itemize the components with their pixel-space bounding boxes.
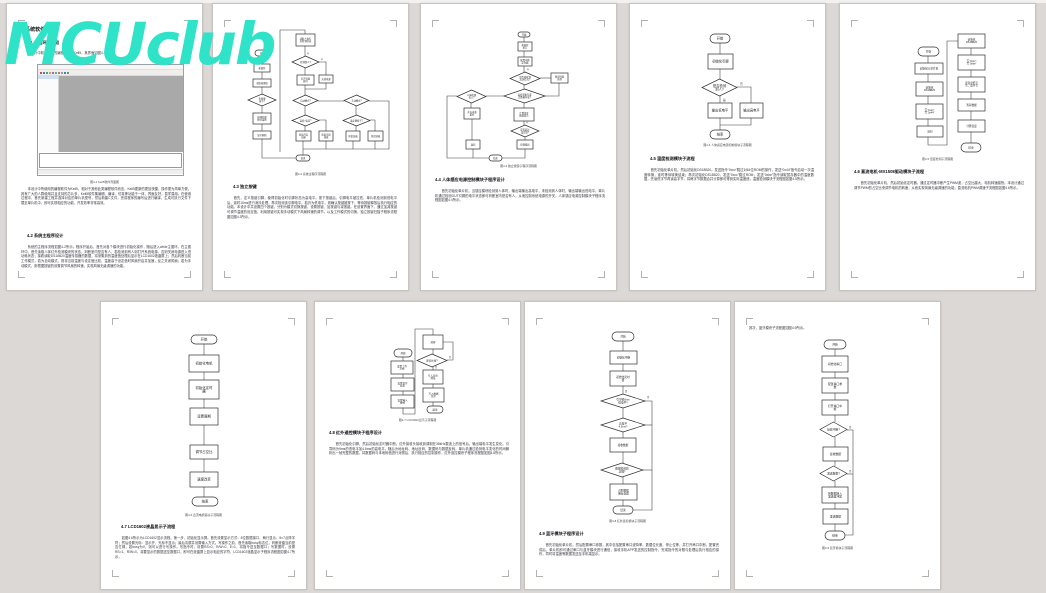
svg-text:是: 是 <box>625 389 628 393</box>
flowchart-bluetooth: 开始初始化串口配置串口参数打开串口中断接收中断?接收数据发送数据?将数据转入发送… <box>735 302 942 544</box>
document-page-4[interactable]: 开始初始化引脚是否检测到人?输出低电平输出高电平结束是否 图4-4 人体感应电源… <box>629 3 826 291</box>
document-page-1[interactable]: 4 系统软件设计 4.1 编程环境介绍 本设计中软件系统的编程环境为Keil5，… <box>6 3 203 291</box>
svg-text:速度改变: 速度改变 <box>197 477 211 482</box>
svg-text:结束: 结束 <box>968 145 974 149</box>
margin-mark <box>598 271 605 278</box>
body-paragraph: 系统的主程序流程如图4-2所示。程序开始后，首先对各个模块进行初始化操作，随后进… <box>21 245 191 268</box>
svg-text:开始: 开始 <box>717 36 724 41</box>
svg-text:初始化中断: 初始化中断 <box>617 355 631 359</box>
margin-mark <box>712 570 719 577</box>
svg-text:初始化引脚: 初始化引脚 <box>712 59 729 64</box>
margin-mark <box>746 570 753 577</box>
section-heading: 4.6 直流电机-MX1508驱动模块子流程 <box>854 169 924 175</box>
margin-mark <box>502 570 509 577</box>
flowchart-main-program: 开始初始化读取按键值有按键按下?按键处理模式设置显示刷新读取人体红外检测状态检测… <box>213 4 410 174</box>
svg-text:是: 是 <box>449 355 452 359</box>
svg-text:否: 否 <box>849 469 852 473</box>
section-heading: 4.3 独立按键 <box>233 184 257 190</box>
svg-text:否: 否 <box>647 395 650 399</box>
figure-caption: 图4-2 系统主程序流程图 <box>213 172 408 176</box>
figure-caption: 图4-8 红外遥控模块子流程图 <box>525 519 730 523</box>
body-paragraph: 首先初始化引脚，然后初始化定时器中断。红外接收头接收到调制在38kHz载波上的信… <box>329 442 509 456</box>
body-paragraph: 首先初始化单片机，然后初始化DS18B20。发送指令“0xcc”跳过对64位RO… <box>644 168 814 182</box>
svg-text:将数据转入发送缓冲区: 将数据转入发送缓冲区 <box>828 492 842 499</box>
svg-text:开始: 开始 <box>201 337 208 342</box>
ide-status-bar <box>38 169 183 174</box>
section-heading: 4.1 编程环境介绍 <box>27 40 59 46</box>
section-heading: 4.7 LCD1602液晶显示子流程 <box>121 524 175 530</box>
document-page-2[interactable]: 开始初始化读取按键值有按键按下?按键处理模式设置显示刷新读取人体红外检测状态检测… <box>212 3 409 291</box>
body-paragraph: 本设计中软件系统的编程环境为Keil5，其界面如图4.1所示。 <box>21 51 191 56</box>
body-paragraph: 首先初始化单片机，然后初始化定时器。通过定时器中断产生PWM波，占空比越大，电机… <box>854 181 1024 190</box>
figure-caption: 图4-9 蓝牙模块子流程图 <box>735 546 940 550</box>
svg-text:否: 否 <box>849 425 852 429</box>
svg-text:结束: 结束 <box>832 533 838 537</box>
svg-text:接收中断?: 接收中断? <box>827 427 840 431</box>
figure-caption: 图4-3 独立按键子程序流程图 <box>421 164 616 168</box>
ide-editor-area <box>59 76 183 152</box>
svg-text:开始: 开始 <box>832 342 838 346</box>
section-heading: 4.5 温度检测模块子流程 <box>650 156 695 162</box>
margin-mark <box>922 570 929 577</box>
body-paragraph: 首先，定义按键引脚，使得初始化时引脚状态为高电平。按下按键后，引脚电平被拉低，单… <box>227 196 397 219</box>
svg-text:发送数据: 发送数据 <box>830 514 841 518</box>
svg-text:结束: 结束 <box>432 407 438 411</box>
svg-text:开始: 开始 <box>620 334 626 338</box>
svg-text:设置周期: 设置周期 <box>197 414 211 419</box>
svg-text:写“0xcc”写“0x44”: 写“0xcc”写“0x44” <box>925 108 935 115</box>
svg-text:否: 否 <box>740 82 743 86</box>
svg-text:是: 是 <box>307 51 309 55</box>
svg-text:高电平4.5ms?: 高电平4.5ms? <box>619 422 628 429</box>
svg-text:初始化电机: 初始化电机 <box>196 361 214 366</box>
flowchart-lcd1602: 开始设置工作方式设置显示状态设置输入模式清屏是否忙碌?写入指令地址写入数据显示结… <box>315 302 522 420</box>
body-paragraph: 如图4.6所示为LCD1602显示流程。第一步，初始化显示屏。首先设置显示方式：… <box>115 536 295 559</box>
flowchart-ds18b20: 开始初始化51单片机初始化DS18B20写“0xcc”写“0x44”延时初始化D… <box>840 4 1037 156</box>
margin-mark <box>326 570 333 577</box>
figure-caption: 图4-5 温度检测子流程图 <box>840 157 1035 161</box>
margin-mark <box>288 570 295 577</box>
body-paragraph: 本设计中所使用的编程软件为Keil5，相对于其他此类编程软件而言，Keil5更新… <box>21 187 191 206</box>
svg-text:接收数据: 接收数据 <box>830 452 841 456</box>
figure-caption: 图4-4 人体感应电源控制模块子流程图 <box>630 143 825 147</box>
flowchart-pir-control: 开始初始化引脚是否检测到人?输出低电平输出高电平结束是否 <box>630 4 827 141</box>
margin-mark <box>224 271 231 278</box>
svg-text:初始化51单片机: 初始化51单片机 <box>920 66 939 70</box>
svg-text:开始: 开始 <box>400 351 406 355</box>
flowchart-ir-remote: 开始初始化中断初始化定时器引导码9ms低电平?高电平4.5ms?接收数据数据码校… <box>525 302 732 522</box>
svg-text:对照数据保存处理: 对照数据保存处理 <box>618 489 629 496</box>
flowchart-motor-pwm: 开始初始化电机初始化定时器设置周期调节占空比速度改变结束 <box>101 302 308 514</box>
document-page-6[interactable]: 开始初始化电机初始化定时器设置周期调节占空比速度改变结束 图4-6 直流电机驱动… <box>100 301 307 590</box>
svg-text:结束: 结束 <box>202 499 209 504</box>
svg-text:结束: 结束 <box>620 508 626 512</box>
body-paragraph: 首先初始化单片机，当感应模块检测到人体时，输出端输出高电平，未检测到人体时，输出… <box>435 189 605 203</box>
figure-caption: 图4-1 Keil5软件界面图 <box>7 180 202 184</box>
svg-text:是: 是 <box>527 67 529 71</box>
svg-text:是: 是 <box>723 98 726 102</box>
svg-text:是否忙碌?: 是否忙碌? <box>426 358 438 362</box>
document-page-7[interactable]: 开始设置工作方式设置显示状态设置输入模式清屏是否忙碌?写入指令地址写入数据显示结… <box>314 301 521 590</box>
margin-mark <box>18 271 25 278</box>
svg-text:读温度低字节、高字节: 读温度低字节、高字节 <box>965 81 978 88</box>
svg-text:延时: 延时 <box>927 129 933 133</box>
document-page-3[interactable]: 开始初始化串口配置中断定时器是否接收到红外信号?保存码值处理人体检测有人?温度采… <box>420 3 617 291</box>
section-heading: 4.2 系统主程序设计 <box>27 233 63 239</box>
document-page-8[interactable]: 开始初始化中断初始化定时器引导码9ms低电平?高电平4.5ms?接收数据数据码校… <box>524 301 731 590</box>
svg-text:输出低电平: 输出低电平 <box>712 108 729 113</box>
svg-text:初始化串口: 初始化串口 <box>828 362 842 366</box>
margin-mark <box>184 271 191 278</box>
margin-mark <box>851 271 858 278</box>
body-paragraph: 首先初始化单片机，然后配置串口参数，其中包括配置串口波特率、数据位长度、停止位等… <box>539 543 719 557</box>
figure-caption: 图4-6 直流电机驱动子流程图 <box>101 513 306 517</box>
svg-text:计算温度: 计算温度 <box>966 124 977 128</box>
svg-text:结束: 结束 <box>717 132 724 137</box>
svg-text:输出高电平: 输出高电平 <box>743 108 760 113</box>
chapter-heading: 4 系统软件设计 <box>21 26 55 33</box>
margin-mark <box>807 271 814 278</box>
svg-text:暂存数据: 暂存数据 <box>966 103 977 107</box>
svg-text:开始: 开始 <box>926 49 932 53</box>
svg-text:接收数据: 接收数据 <box>618 443 629 447</box>
margin-mark <box>1017 271 1024 278</box>
section-heading: 4.4 人体感应电源控制模块子程序设计 <box>435 177 505 183</box>
margin-mark <box>184 20 191 27</box>
margin-mark <box>432 271 439 278</box>
svg-text:调节占空比: 调节占空比 <box>196 449 214 454</box>
document-page-5[interactable]: 开始初始化51单片机初始化DS18B20写“0xcc”写“0x44”延时初始化D… <box>839 3 1036 291</box>
margin-mark <box>112 570 119 577</box>
figure-caption: 图4-7 LCD1602显示子流程图 <box>315 418 520 422</box>
margin-mark <box>641 271 648 278</box>
section-heading: 4.8 红外遥控模块子程序设计 <box>329 430 382 436</box>
margin-mark <box>536 570 543 577</box>
ide-output-panel <box>39 153 182 168</box>
svg-text:发送数据?: 发送数据? <box>827 471 840 475</box>
document-page-9[interactable]: 其次，蓝牙模块子流程图如图4.9所示。 开始初始化串口配置串口参数打开串口中断接… <box>734 301 941 590</box>
svg-text:清屏: 清屏 <box>430 340 436 344</box>
margin-mark <box>390 271 397 278</box>
ide-project-panel <box>38 76 59 152</box>
svg-text:否: 否 <box>321 57 323 61</box>
embedded-ide-screenshot <box>37 64 184 176</box>
svg-text:写“0xcc”写“0xbe”: 写“0xcc”写“0xbe” <box>967 59 977 66</box>
flowchart-key-scan: 开始初始化串口配置中断定时器是否接收到红外信号?保存码值处理人体检测有人?温度采… <box>421 4 618 164</box>
section-heading: 4.9 蓝牙模块子程序设计 <box>539 531 584 537</box>
